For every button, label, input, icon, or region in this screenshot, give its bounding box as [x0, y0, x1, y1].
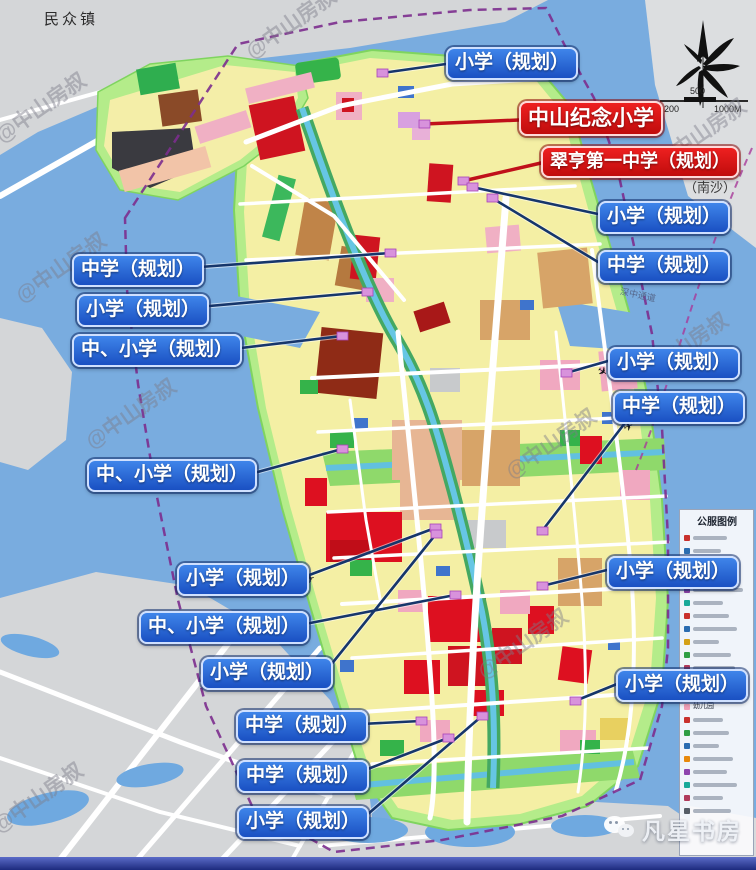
watermark-badge-text: 凡星书房 [642, 812, 742, 846]
label-primary-school-planned-r4: 小学（规划） [616, 669, 748, 702]
scale-bar: 500 200 1000M [656, 84, 752, 120]
bottom-bar [0, 857, 756, 870]
label-middle-primary-planned-l2: 中、小学（规划） [87, 459, 257, 492]
scale-lower-left-value: 200 [664, 104, 679, 114]
label-primary-school-planned-l1: 小学（规划） [77, 294, 209, 327]
label-primary-school-planned-m2: 小学（规划） [201, 657, 333, 690]
label-middle-school-planned-b1: 中学（规划） [236, 710, 368, 743]
label-middle-school-planned-b2: 中学（规划） [237, 760, 369, 793]
label-middle-school-planned-r1: 中学（规划） [598, 250, 730, 283]
scale-upper-value: 500 [690, 86, 705, 96]
label-zhongshan-memorial-primary: 中山纪念小学 [519, 101, 663, 136]
wechat-icon [604, 816, 636, 842]
label-middle-school-planned-l1: 中学（规划） [72, 254, 204, 287]
label-primary-school-planned-r1: 小学（规划） [598, 201, 730, 234]
region-label-nansha: （南沙） [684, 177, 736, 196]
legend-item-kindergarten: 幼儿园 [684, 700, 750, 713]
scale-lower-right-value: 1000M [714, 104, 742, 114]
label-middle-school-planned-r2: 中学（规划） [613, 391, 745, 424]
legend-title: 公服图例 [684, 513, 750, 528]
watermark-badge: 凡星书房 [604, 812, 742, 846]
label-cuiheng-no1-middle-planned: 翠亨第一中学（规划） [541, 146, 739, 178]
scale-line-segment [684, 97, 716, 102]
label-middle-primary-planned-l1: 中、小学（规划） [72, 334, 242, 367]
school-planning-map: ✈ ✈ ✈ 民众镇 （南沙） 深中通道 500 200 1000M 公服图例 中… [0, 0, 756, 870]
label-primary-school-planned-r2: 小学（规划） [608, 347, 740, 380]
label-primary-school-planned-r3: 小学（规划） [607, 556, 739, 589]
label-primary-school-planned-top: 小学（规划） [446, 47, 578, 80]
town-label-minzhong: 民众镇 [44, 8, 98, 29]
label-middle-primary-planned-m: 中、小学（规划） [139, 611, 309, 644]
label-primary-school-planned-m1: 小学（规划） [177, 563, 309, 596]
label-primary-school-planned-b: 小学（规划） [237, 806, 369, 839]
